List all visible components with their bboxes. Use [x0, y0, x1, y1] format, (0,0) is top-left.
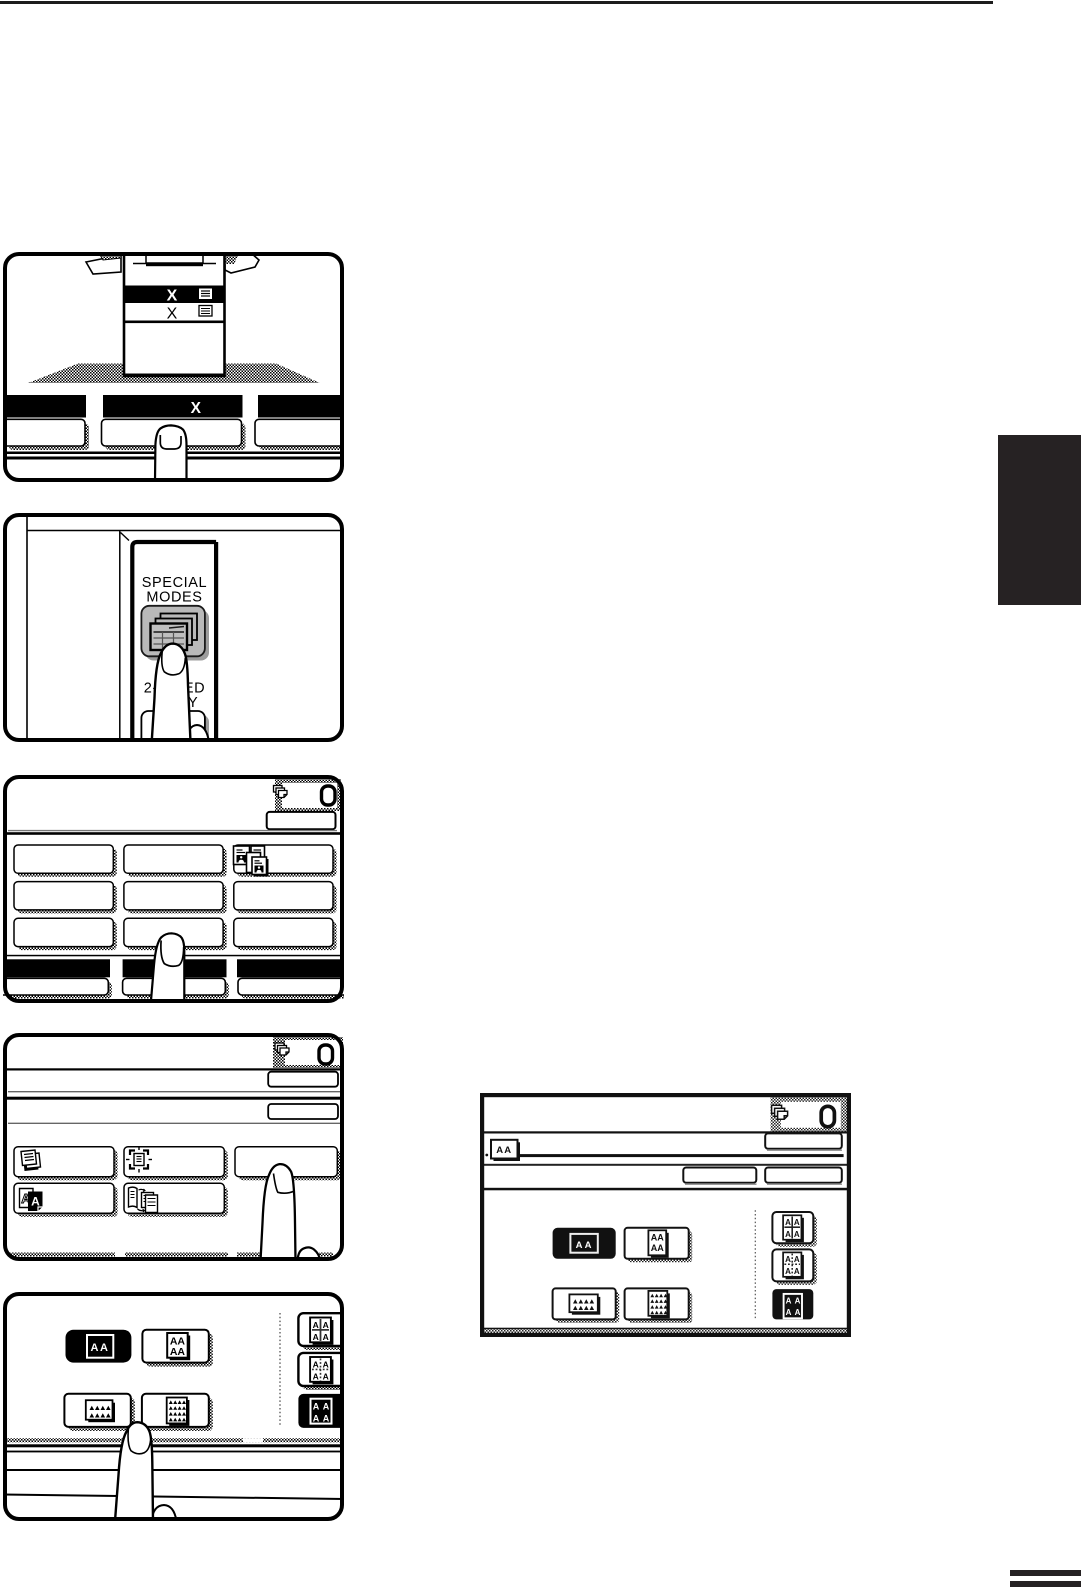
svg-text:X: X	[167, 288, 178, 305]
svg-text:A: A	[794, 1230, 800, 1239]
svg-text:A: A	[786, 1308, 792, 1317]
svg-text:A: A	[323, 1402, 330, 1412]
svg-text:AA: AA	[170, 1346, 186, 1358]
svg-text:A: A	[313, 1332, 319, 1342]
svg-text:A: A	[785, 1267, 791, 1276]
svg-text:A: A	[313, 1372, 319, 1382]
svg-text:A: A	[794, 1267, 800, 1276]
svg-text:AA: AA	[496, 1145, 512, 1156]
svg-text:A: A	[323, 1332, 329, 1342]
svg-text:A: A	[323, 1360, 329, 1370]
svg-text:AA: AA	[651, 1233, 664, 1243]
svg-text:X: X	[167, 306, 178, 323]
svg-text:AA: AA	[651, 1243, 664, 1253]
svg-text:MODES: MODES	[146, 590, 202, 606]
svg-text:A: A	[323, 1414, 330, 1424]
svg-text:A: A	[786, 1297, 792, 1306]
svg-text:A: A	[785, 1230, 791, 1239]
svg-text:A: A	[323, 1372, 329, 1382]
svg-text:A: A	[795, 1308, 801, 1317]
svg-text:A: A	[31, 1195, 40, 1209]
svg-text:A: A	[794, 1218, 800, 1227]
svg-text:A: A	[323, 1320, 329, 1330]
svg-text:A: A	[313, 1320, 319, 1330]
svg-text:A: A	[785, 1255, 791, 1264]
svg-text:AA: AA	[576, 1240, 594, 1251]
svg-text:A: A	[313, 1414, 320, 1424]
svg-text:A: A	[313, 1360, 319, 1370]
svg-text:AA: AA	[91, 1342, 110, 1354]
svg-text:A: A	[795, 1297, 801, 1306]
svg-text:A: A	[785, 1218, 791, 1227]
svg-text:A: A	[313, 1402, 320, 1412]
svg-text:A: A	[794, 1255, 800, 1264]
svg-text:X: X	[191, 400, 202, 417]
